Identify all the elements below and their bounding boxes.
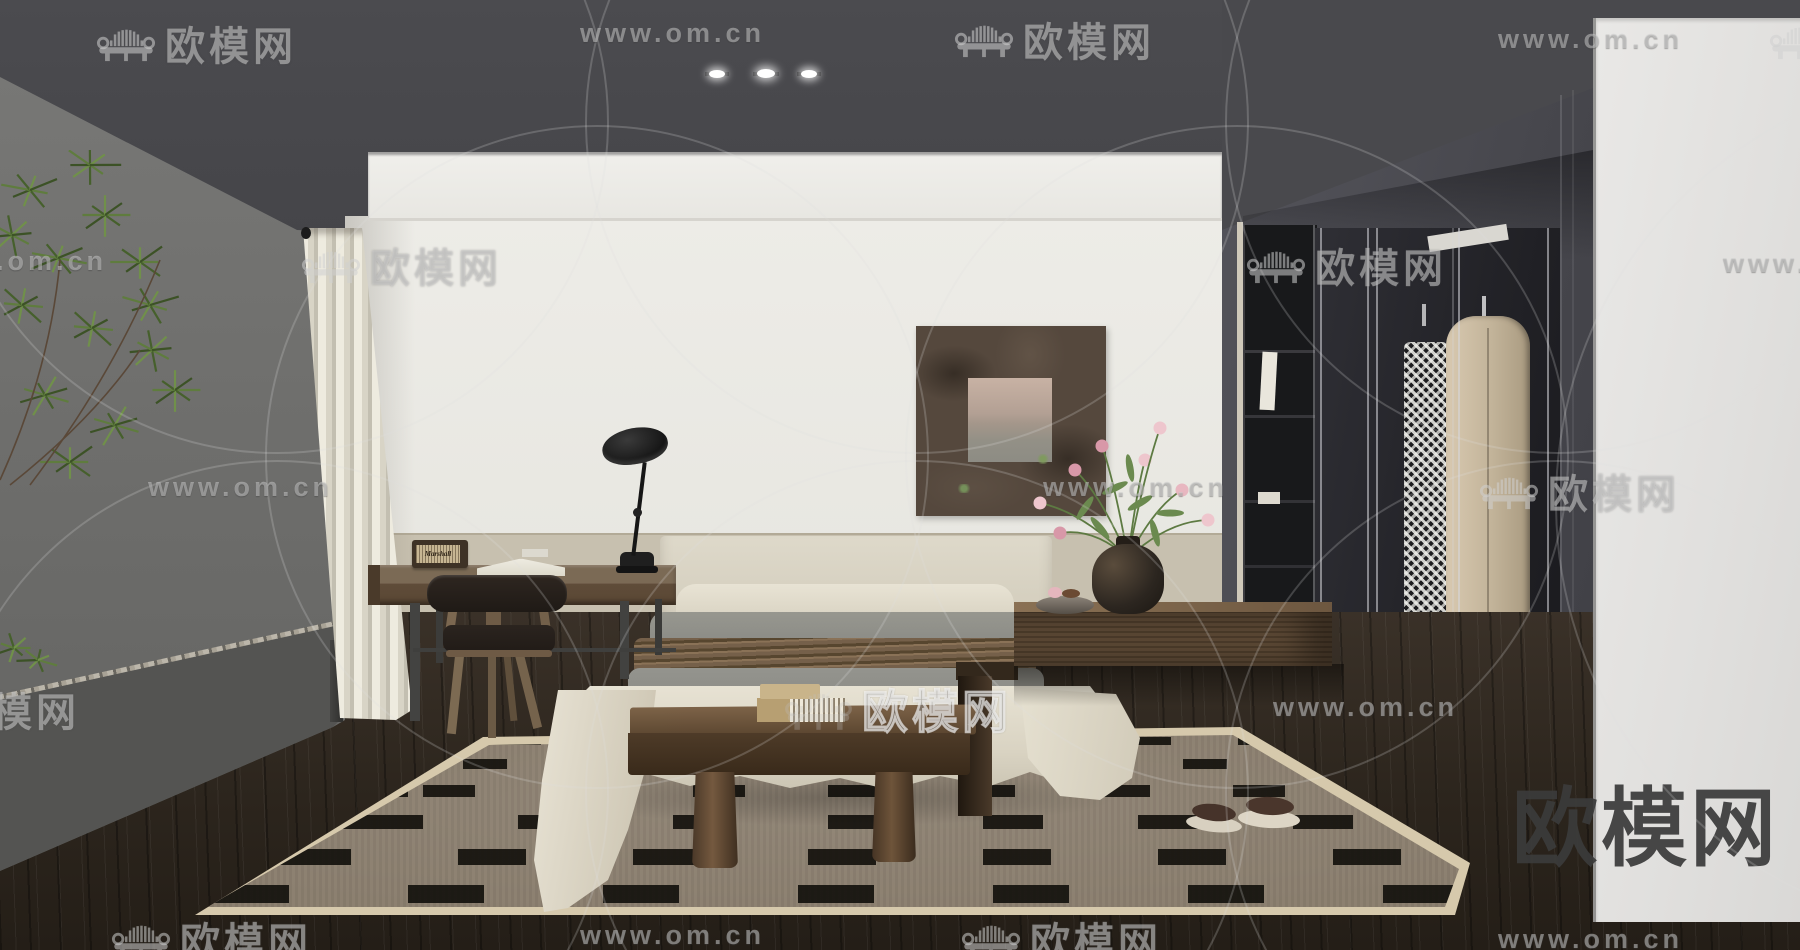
bench-book-top [760, 684, 820, 699]
dish-potpourri [1062, 589, 1080, 598]
console-shelf-front [1014, 612, 1332, 666]
bed-shadow [560, 770, 1120, 826]
brand-watermark-large: 欧模网 [1512, 758, 1779, 883]
hanger-icon [1422, 304, 1426, 326]
spotlight-glow [801, 70, 817, 78]
plant-small [0, 620, 60, 680]
desk-leg [410, 603, 420, 721]
desk-leg [620, 601, 629, 679]
desk-speaker: Marshall [412, 540, 468, 568]
book-pages [790, 698, 845, 722]
bench-leg [692, 772, 738, 868]
light-cove [368, 152, 1222, 218]
chair-seat-rim [446, 650, 552, 657]
desk-end-face [368, 565, 380, 605]
vase [1092, 544, 1164, 614]
wardrobe-seam [1313, 225, 1315, 655]
curtain-rod-hook [301, 227, 311, 239]
console-under-shadow [1014, 664, 1344, 706]
trinket-dish [1036, 596, 1094, 614]
chair-seat-cushion [443, 625, 555, 652]
rug-dash-row [193, 885, 1475, 903]
desk-lamp-joint [633, 508, 642, 517]
bench-leg [872, 772, 916, 862]
chair-leg [488, 656, 496, 738]
niche-shelf [1245, 350, 1317, 353]
ceiling-spotlights [705, 66, 835, 88]
spotlight-glow [757, 69, 775, 78]
niche-object [1258, 492, 1280, 504]
bedroom-render: 欧模网 Marshall [0, 0, 1800, 950]
dish-flower [1048, 587, 1062, 598]
closet-shelf [1427, 224, 1509, 252]
rug-dash-row [193, 849, 1475, 865]
speaker-label: Marshall [425, 550, 451, 558]
spotlight-glow [709, 70, 725, 78]
bench-books [757, 698, 845, 722]
niche-book [1259, 352, 1277, 411]
paper-cards [522, 549, 548, 557]
desk-leg [655, 599, 662, 655]
bench-front [628, 733, 970, 775]
plant [0, 150, 210, 490]
artwork-sprig [956, 484, 972, 493]
speaker-grille: Marshall [416, 545, 460, 563]
chair-back-cushion [427, 575, 567, 612]
desk-lamp-baseplate [616, 566, 658, 573]
